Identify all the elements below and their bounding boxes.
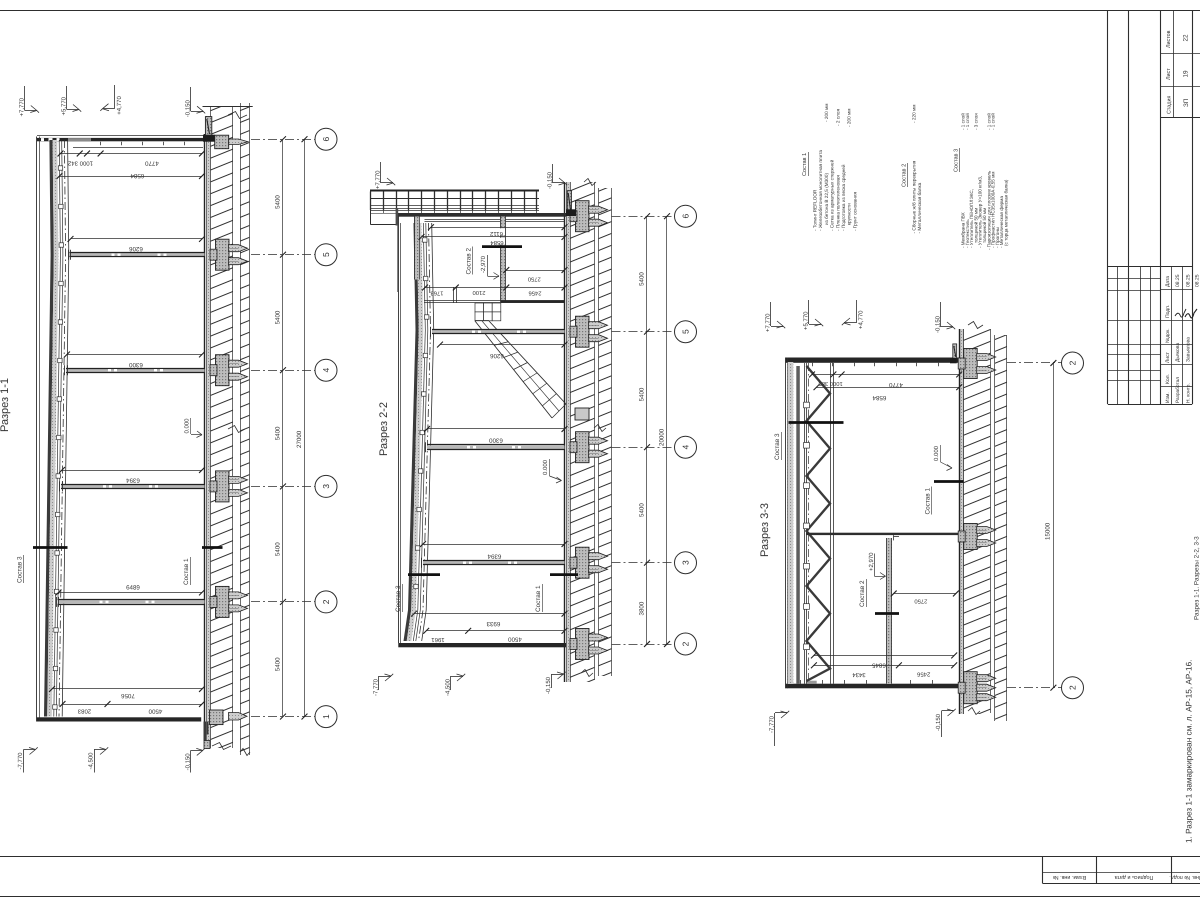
svg-text:-4,500: -4,500	[88, 752, 95, 770]
svg-text:6206: 6206	[129, 245, 143, 252]
svg-text:Состав 1: Состав 1	[183, 558, 190, 585]
svg-text:2456: 2456	[529, 290, 542, 297]
svg-text:Подп.: Подп.	[1165, 305, 1171, 318]
svg-text:5: 5	[321, 252, 331, 257]
svg-text:2: 2	[321, 599, 331, 604]
svg-text:Разрез 2-2: Разрез 2-2	[378, 402, 390, 456]
svg-text:Разработал: Разработал	[1175, 377, 1181, 403]
svg-text:6206: 6206	[490, 352, 504, 359]
svg-text:Дата: Дата	[1165, 276, 1171, 287]
svg-text:3434: 3434	[852, 671, 866, 678]
svg-text:0.000: 0.000	[184, 418, 191, 434]
svg-text:6584: 6584	[490, 239, 504, 246]
svg-text:- 200 мм: - 200 мм	[824, 104, 829, 122]
svg-text:- 1 слой: - 1 слой	[965, 113, 970, 130]
svg-text:1: 1	[321, 714, 331, 719]
svg-text:0.000: 0.000	[933, 445, 940, 461]
svg-text:крупности: крупности	[847, 203, 852, 225]
svg-text:4: 4	[321, 368, 331, 373]
svg-text:Разрез 1-1: Разрез 1-1	[0, 378, 11, 432]
svg-text:- Железобетонная монолитная пл: - Железобетонная монолитная плита	[818, 150, 823, 231]
svg-text:15000: 15000	[1045, 522, 1052, 540]
svg-text:2: 2	[1068, 685, 1078, 690]
svg-text:5400: 5400	[275, 657, 282, 671]
svg-text:1000 342: 1000 342	[67, 160, 93, 167]
svg-text:- 2 слоя: - 2 слоя	[835, 108, 840, 126]
svg-text:6845: 6845	[872, 661, 886, 668]
svg-text:6300: 6300	[129, 361, 143, 368]
svg-text:Подпись и дата: Подпись и дата	[1115, 874, 1154, 880]
svg-text:19: 19	[1183, 70, 1190, 78]
svg-text:Завьялова: Завьялова	[1186, 337, 1192, 362]
svg-text:№док.: №док.	[1165, 328, 1171, 343]
svg-text:1. Разрез 1-1 замаркирован см.: 1. Разрез 1-1 замаркирован см. л. АР-15,…	[1185, 660, 1194, 843]
svg-text:3800: 3800	[639, 601, 646, 615]
svg-text:+5,770: +5,770	[803, 311, 810, 330]
svg-text:из бетона В 22,5 (М300): из бетона В 22,5 (М300)	[824, 173, 829, 225]
svg-text:- 220 мм: - 220 мм	[911, 105, 916, 123]
svg-text:Состав 1: Состав 1	[925, 488, 932, 515]
svg-text:0.000: 0.000	[542, 459, 549, 475]
svg-text:-0,150: -0,150	[547, 171, 554, 189]
svg-text:6394: 6394	[126, 477, 140, 484]
svg-text:+2,970: +2,970	[868, 552, 875, 571]
svg-text:-2,970: -2,970	[480, 255, 487, 273]
svg-text:+7,770: +7,770	[375, 170, 382, 189]
svg-text:- 3 слоя: - 3 слоя	[973, 113, 978, 130]
svg-text:+7,770: +7,770	[765, 313, 772, 332]
svg-text:5400: 5400	[639, 272, 646, 286]
svg-text:-0,150: -0,150	[545, 676, 552, 694]
svg-text:2750: 2750	[914, 598, 927, 605]
svg-text:3: 3	[681, 560, 691, 565]
svg-text:Состав 2: Состав 2	[466, 248, 473, 275]
svg-text:1961: 1961	[431, 636, 445, 643]
svg-text:- 1 слой: - 1 слой	[991, 113, 996, 130]
svg-text:Разрез 3-3: Разрез 3-3	[759, 503, 771, 557]
svg-text:Н. контр.: Н. контр.	[1186, 383, 1192, 403]
svg-text:2083: 2083	[77, 708, 91, 715]
svg-text:3: 3	[321, 484, 331, 489]
svg-text:Стадия: Стадия	[1167, 96, 1173, 114]
svg-text:1000 385: 1000 385	[819, 380, 843, 387]
svg-text:Дьякова: Дьякова	[1175, 343, 1181, 362]
svg-text:Состав 2: Состав 2	[902, 164, 908, 187]
svg-text:5400: 5400	[275, 542, 282, 556]
svg-text:-7,770: -7,770	[769, 715, 776, 733]
svg-text:Взам. инв. №: Взам. инв. №	[1053, 874, 1087, 880]
svg-text:Кол.: Кол.	[1165, 374, 1171, 384]
svg-text:6112: 6112	[489, 230, 503, 237]
svg-text:- Пленка полиэтиленовая: - Пленка полиэтиленовая	[835, 175, 840, 231]
svg-text:- Подготовка из песка средней: - Подготовка из песка средней	[841, 164, 846, 231]
svg-text:Состав 1: Состав 1	[535, 585, 542, 612]
svg-text:4770: 4770	[145, 160, 159, 167]
svg-text:Разрез 1-1. Разрезы 2-2, 3-3: Разрез 1-1. Разрезы 2-2, 3-3	[1194, 536, 1200, 620]
svg-text:5400: 5400	[275, 426, 282, 440]
svg-text:Состав 3: Состав 3	[17, 556, 24, 583]
svg-text:27000: 27000	[296, 430, 303, 448]
svg-text:-0,150: -0,150	[935, 315, 942, 333]
svg-text:6584: 6584	[872, 394, 886, 401]
svg-text:5400: 5400	[275, 195, 282, 209]
svg-text:6300: 6300	[489, 437, 503, 444]
svg-text:2: 2	[1068, 360, 1078, 365]
svg-text:Лист: Лист	[1166, 68, 1172, 80]
svg-text:6933: 6933	[486, 620, 500, 627]
svg-text:+4,770: +4,770	[858, 310, 865, 329]
svg-text:7056: 7056	[121, 692, 135, 699]
svg-text:Изм.: Изм.	[1165, 392, 1171, 403]
svg-text:5400: 5400	[275, 310, 282, 324]
svg-text:5400: 5400	[639, 503, 646, 517]
svg-text:4500: 4500	[148, 708, 162, 715]
svg-text:-0,150: -0,150	[184, 753, 191, 771]
svg-text:08.25: 08.25	[1175, 274, 1181, 287]
svg-text:-0,150: -0,150	[185, 100, 192, 118]
svg-text:-0,150: -0,150	[935, 713, 942, 731]
svg-text:2456: 2456	[916, 671, 930, 678]
svg-text:+4,770: +4,770	[116, 96, 123, 115]
svg-text:Лист: Лист	[1165, 351, 1171, 363]
svg-text:- Металлическая балка: - Металлическая балка	[917, 182, 922, 233]
svg-text:(с торца металлическая балка): (с торца металлическая балка)	[1004, 179, 1009, 246]
svg-text:2: 2	[681, 641, 691, 646]
svg-text:Состав 3: Состав 3	[395, 585, 402, 612]
svg-text:6: 6	[681, 214, 691, 219]
svg-text:- Грунт основания: - Грунт основания	[852, 192, 857, 231]
svg-text:- 200 мм: - 200 мм	[847, 109, 852, 127]
svg-text:-7,770: -7,770	[373, 678, 380, 696]
svg-text:08.25: 08.25	[1195, 274, 1200, 287]
svg-text:4500: 4500	[508, 636, 522, 643]
svg-text:- Топинг REFLOOR: - Топинг REFLOOR	[813, 189, 818, 231]
svg-text:+7,770: +7,770	[18, 97, 25, 116]
svg-text:6: 6	[321, 137, 331, 142]
svg-text:Инв. № подл.: Инв. № подл.	[1169, 874, 1200, 880]
svg-text:20000: 20000	[659, 428, 666, 446]
svg-text:-7,770: -7,770	[17, 752, 24, 770]
svg-text:Состав 3: Состав 3	[953, 149, 959, 172]
svg-text:6489: 6489	[126, 585, 140, 592]
svg-text:- Сетка из арматурных стержней: - Сетка из арматурных стержней	[830, 159, 835, 231]
svg-text:2100: 2100	[473, 289, 486, 296]
svg-text:5: 5	[681, 329, 691, 334]
svg-text:4770: 4770	[889, 381, 903, 388]
svg-text:Состав 2: Состав 2	[859, 580, 866, 607]
svg-text:6584: 6584	[130, 172, 144, 179]
svg-text:Состав 3: Состав 3	[774, 433, 781, 460]
svg-text:- Сборные ж/б плиты перекрытия: - Сборные ж/б плиты перекрытия	[911, 160, 916, 233]
svg-text:Листов: Листов	[1166, 30, 1172, 48]
svg-text:22: 22	[1183, 34, 1190, 42]
svg-text:5400: 5400	[639, 387, 646, 401]
svg-text:4: 4	[681, 445, 691, 450]
svg-text:-4,500: -4,500	[445, 678, 452, 696]
svg-text:1763: 1763	[431, 289, 444, 296]
svg-text:08.25: 08.25	[1186, 274, 1192, 287]
svg-text:ЗП: ЗП	[1183, 98, 1190, 107]
svg-text:6394: 6394	[487, 553, 501, 560]
svg-text:Состав 1: Состав 1	[802, 153, 808, 176]
svg-text:2750: 2750	[528, 276, 541, 283]
svg-text:+5,770: +5,770	[61, 96, 68, 115]
